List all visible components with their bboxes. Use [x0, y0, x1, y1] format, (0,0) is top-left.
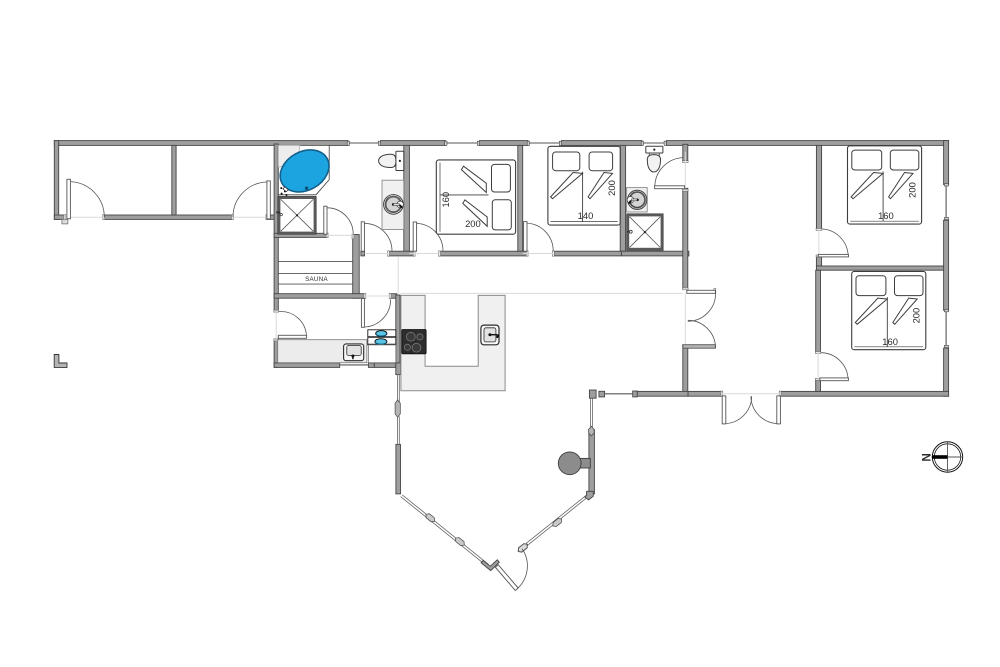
svg-text:200: 200 [906, 182, 917, 198]
svg-text:160: 160 [882, 336, 898, 347]
svg-text:SAUNA: SAUNA [305, 276, 328, 283]
svg-text:200: 200 [911, 308, 922, 324]
svg-text:200: 200 [465, 218, 481, 229]
svg-text:160: 160 [440, 192, 451, 208]
svg-text:140: 140 [578, 210, 594, 221]
svg-text:200: 200 [606, 180, 617, 196]
svg-text:160: 160 [878, 210, 894, 221]
svg-text:N: N [919, 453, 931, 461]
